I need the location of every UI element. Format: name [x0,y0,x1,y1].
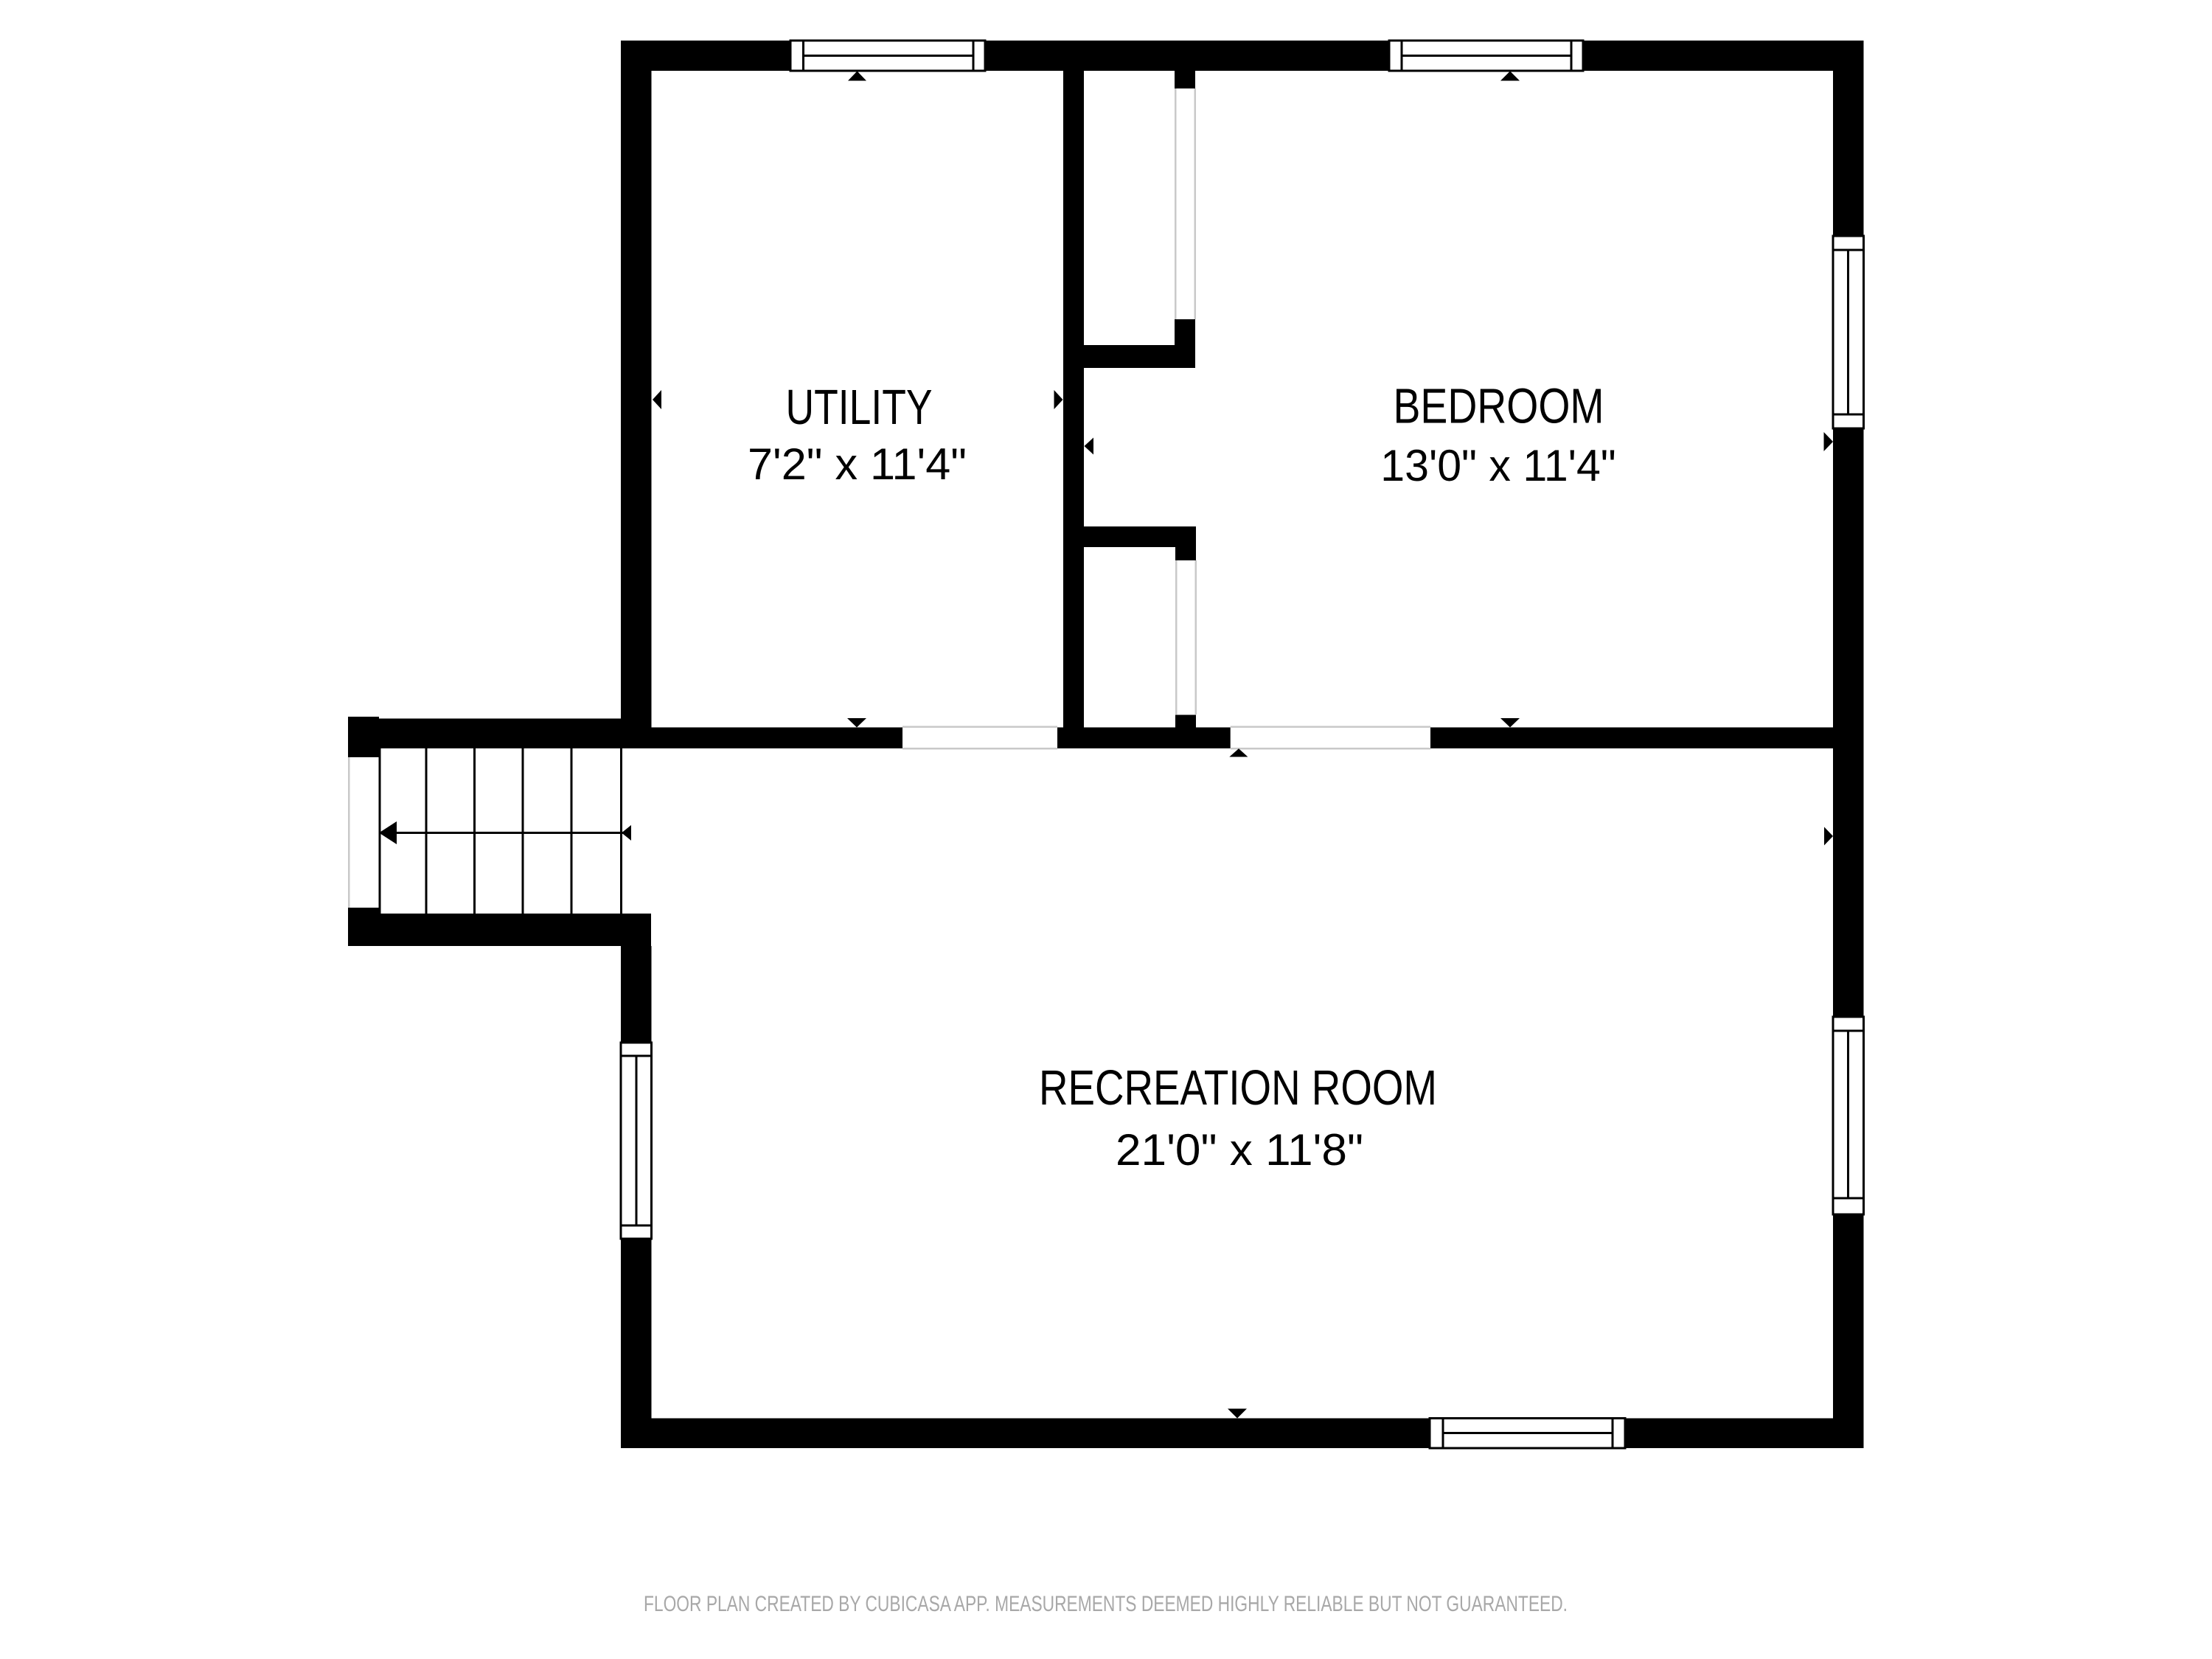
svg-text:FLOOR PLAN CREATED BY CUBICASA: FLOOR PLAN CREATED BY CUBICASA APP. MEAS… [644,1592,1568,1616]
svg-text:7'2" x 11'4": 7'2" x 11'4" [748,439,967,489]
svg-text:13'0" x 11'4": 13'0" x 11'4" [1380,441,1616,490]
svg-text:UTILITY: UTILITY [786,380,933,435]
svg-text:RECREATION ROOM: RECREATION ROOM [1039,1060,1437,1116]
svg-text:21'0" x 11'8": 21'0" x 11'8" [1116,1125,1363,1175]
svg-text:BEDROOM: BEDROOM [1394,379,1604,434]
